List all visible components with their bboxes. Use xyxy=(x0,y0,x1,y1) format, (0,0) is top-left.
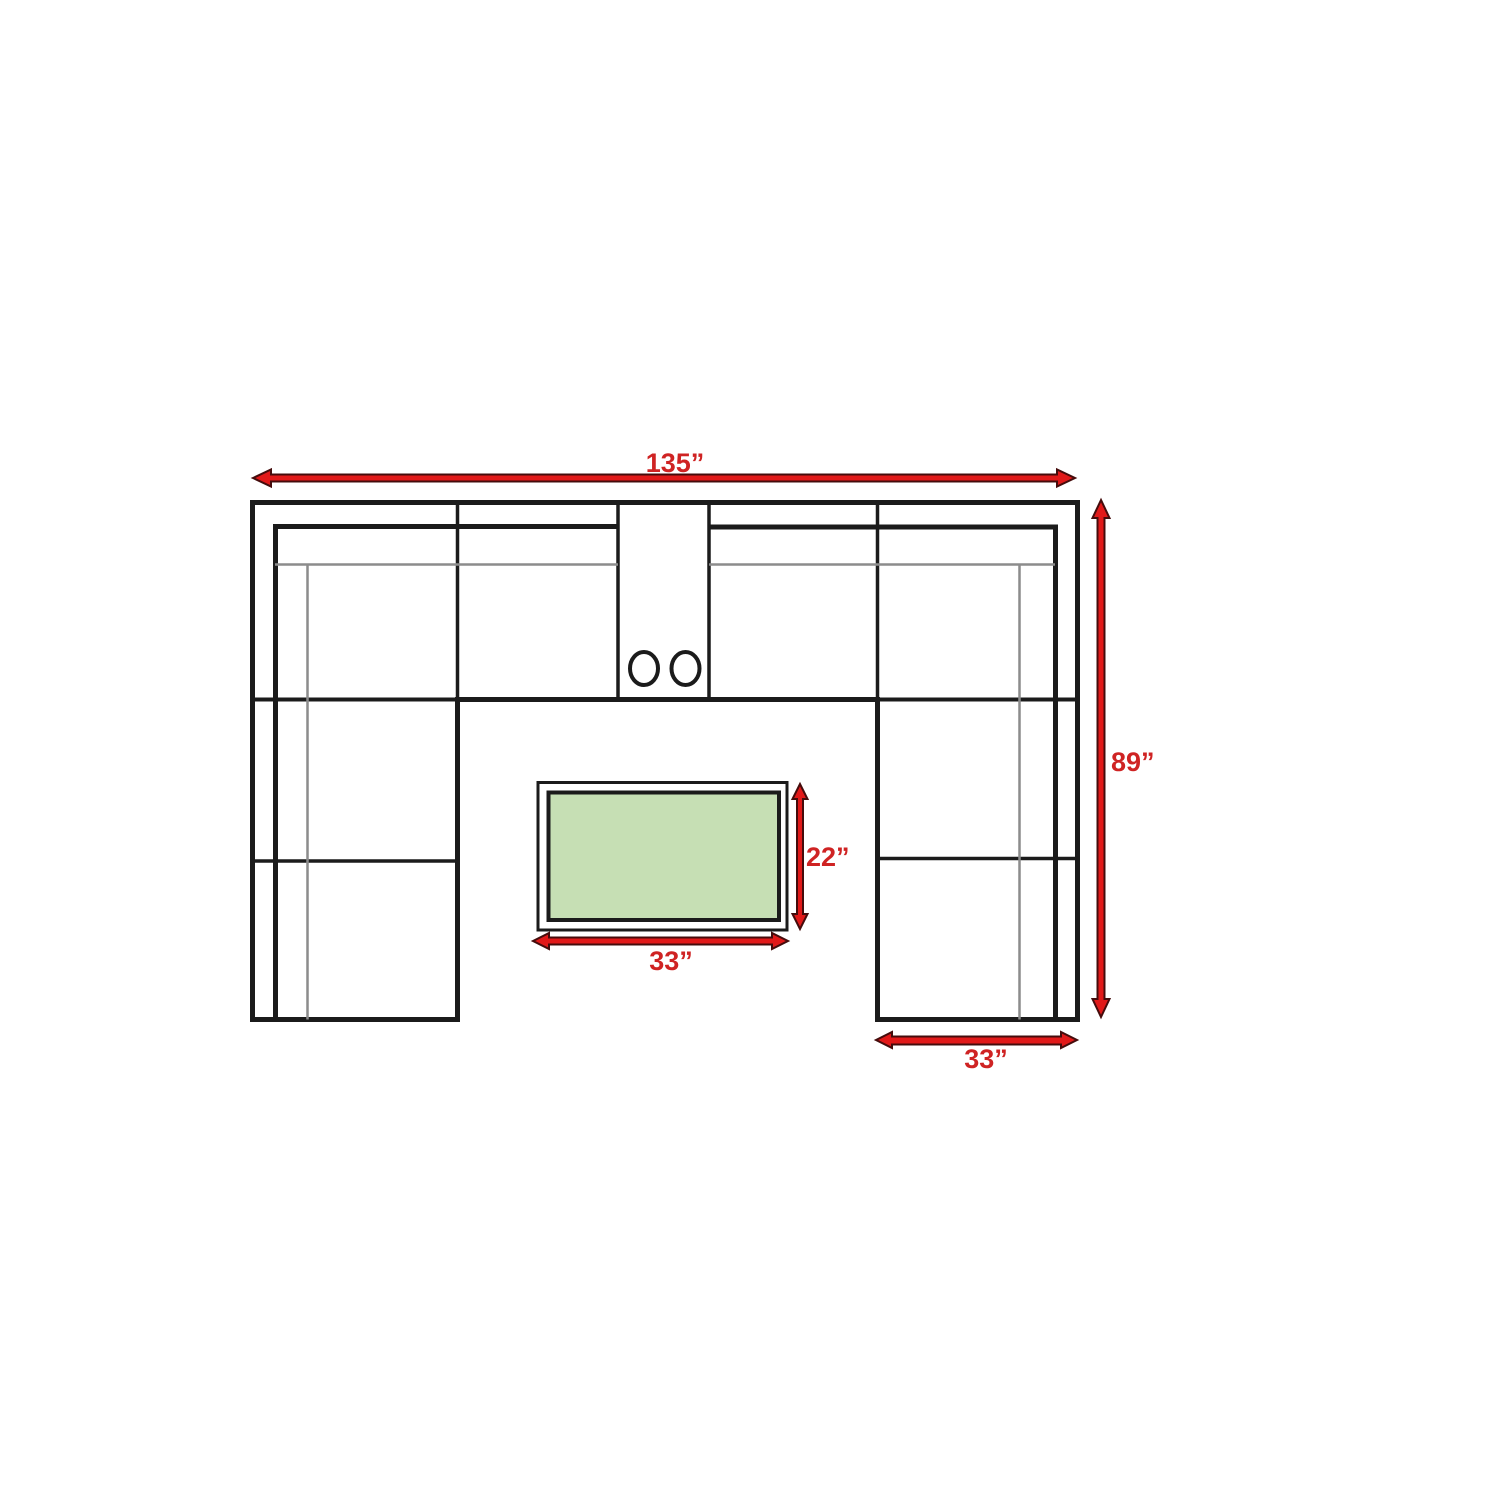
ottoman-depth-label: 22” xyxy=(806,842,850,872)
floor-plan-diagram: 135” 89” 22” 33” 33” xyxy=(0,0,1500,1500)
cupholder-circle-icon xyxy=(672,652,700,685)
right-section-width-label: 33” xyxy=(964,1044,1008,1074)
cupholder-circle-icon xyxy=(630,652,658,685)
double-headed-arrow-icon-overall-depth xyxy=(1093,500,1110,1017)
ottoman-group xyxy=(538,783,787,931)
overall-depth-label: 89” xyxy=(1111,747,1155,777)
floor-plan-page: 135” 89” 22” 33” 33” xyxy=(0,0,1500,1500)
ottoman-top xyxy=(549,793,780,921)
ottoman-width-label: 33” xyxy=(649,946,693,976)
overall-width-label: 135” xyxy=(646,448,705,478)
